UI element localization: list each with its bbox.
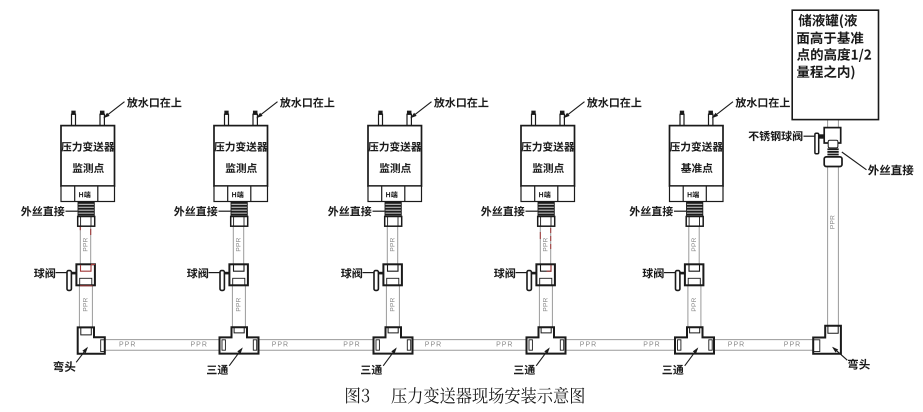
svg-text:PPR: PPR: [691, 297, 698, 311]
svg-text:PPR: PPR: [728, 342, 745, 349]
svg-text:PPR: PPR: [691, 237, 698, 251]
svg-text:PPR: PPR: [425, 342, 442, 349]
svg-text:PPR: PPR: [542, 297, 549, 311]
svg-text:PPR: PPR: [580, 342, 597, 349]
svg-text:PPR: PPR: [82, 237, 89, 251]
svg-text:PPR: PPR: [496, 342, 513, 349]
svg-text:PPR: PPR: [830, 215, 837, 229]
svg-text:PPR: PPR: [784, 342, 801, 349]
svg-text:PPR: PPR: [235, 237, 242, 251]
svg-text:PPR: PPR: [542, 237, 549, 251]
svg-text:PPR: PPR: [272, 342, 289, 349]
svg-text:PPR: PPR: [235, 297, 242, 311]
svg-text:PPR: PPR: [82, 297, 89, 311]
svg-text:PPR: PPR: [389, 297, 396, 311]
svg-text:PPR: PPR: [119, 342, 136, 349]
svg-text:PPR: PPR: [643, 342, 660, 349]
svg-text:PPR: PPR: [343, 342, 360, 349]
svg-text:PPR: PPR: [190, 342, 207, 349]
svg-text:PPR: PPR: [389, 237, 396, 251]
